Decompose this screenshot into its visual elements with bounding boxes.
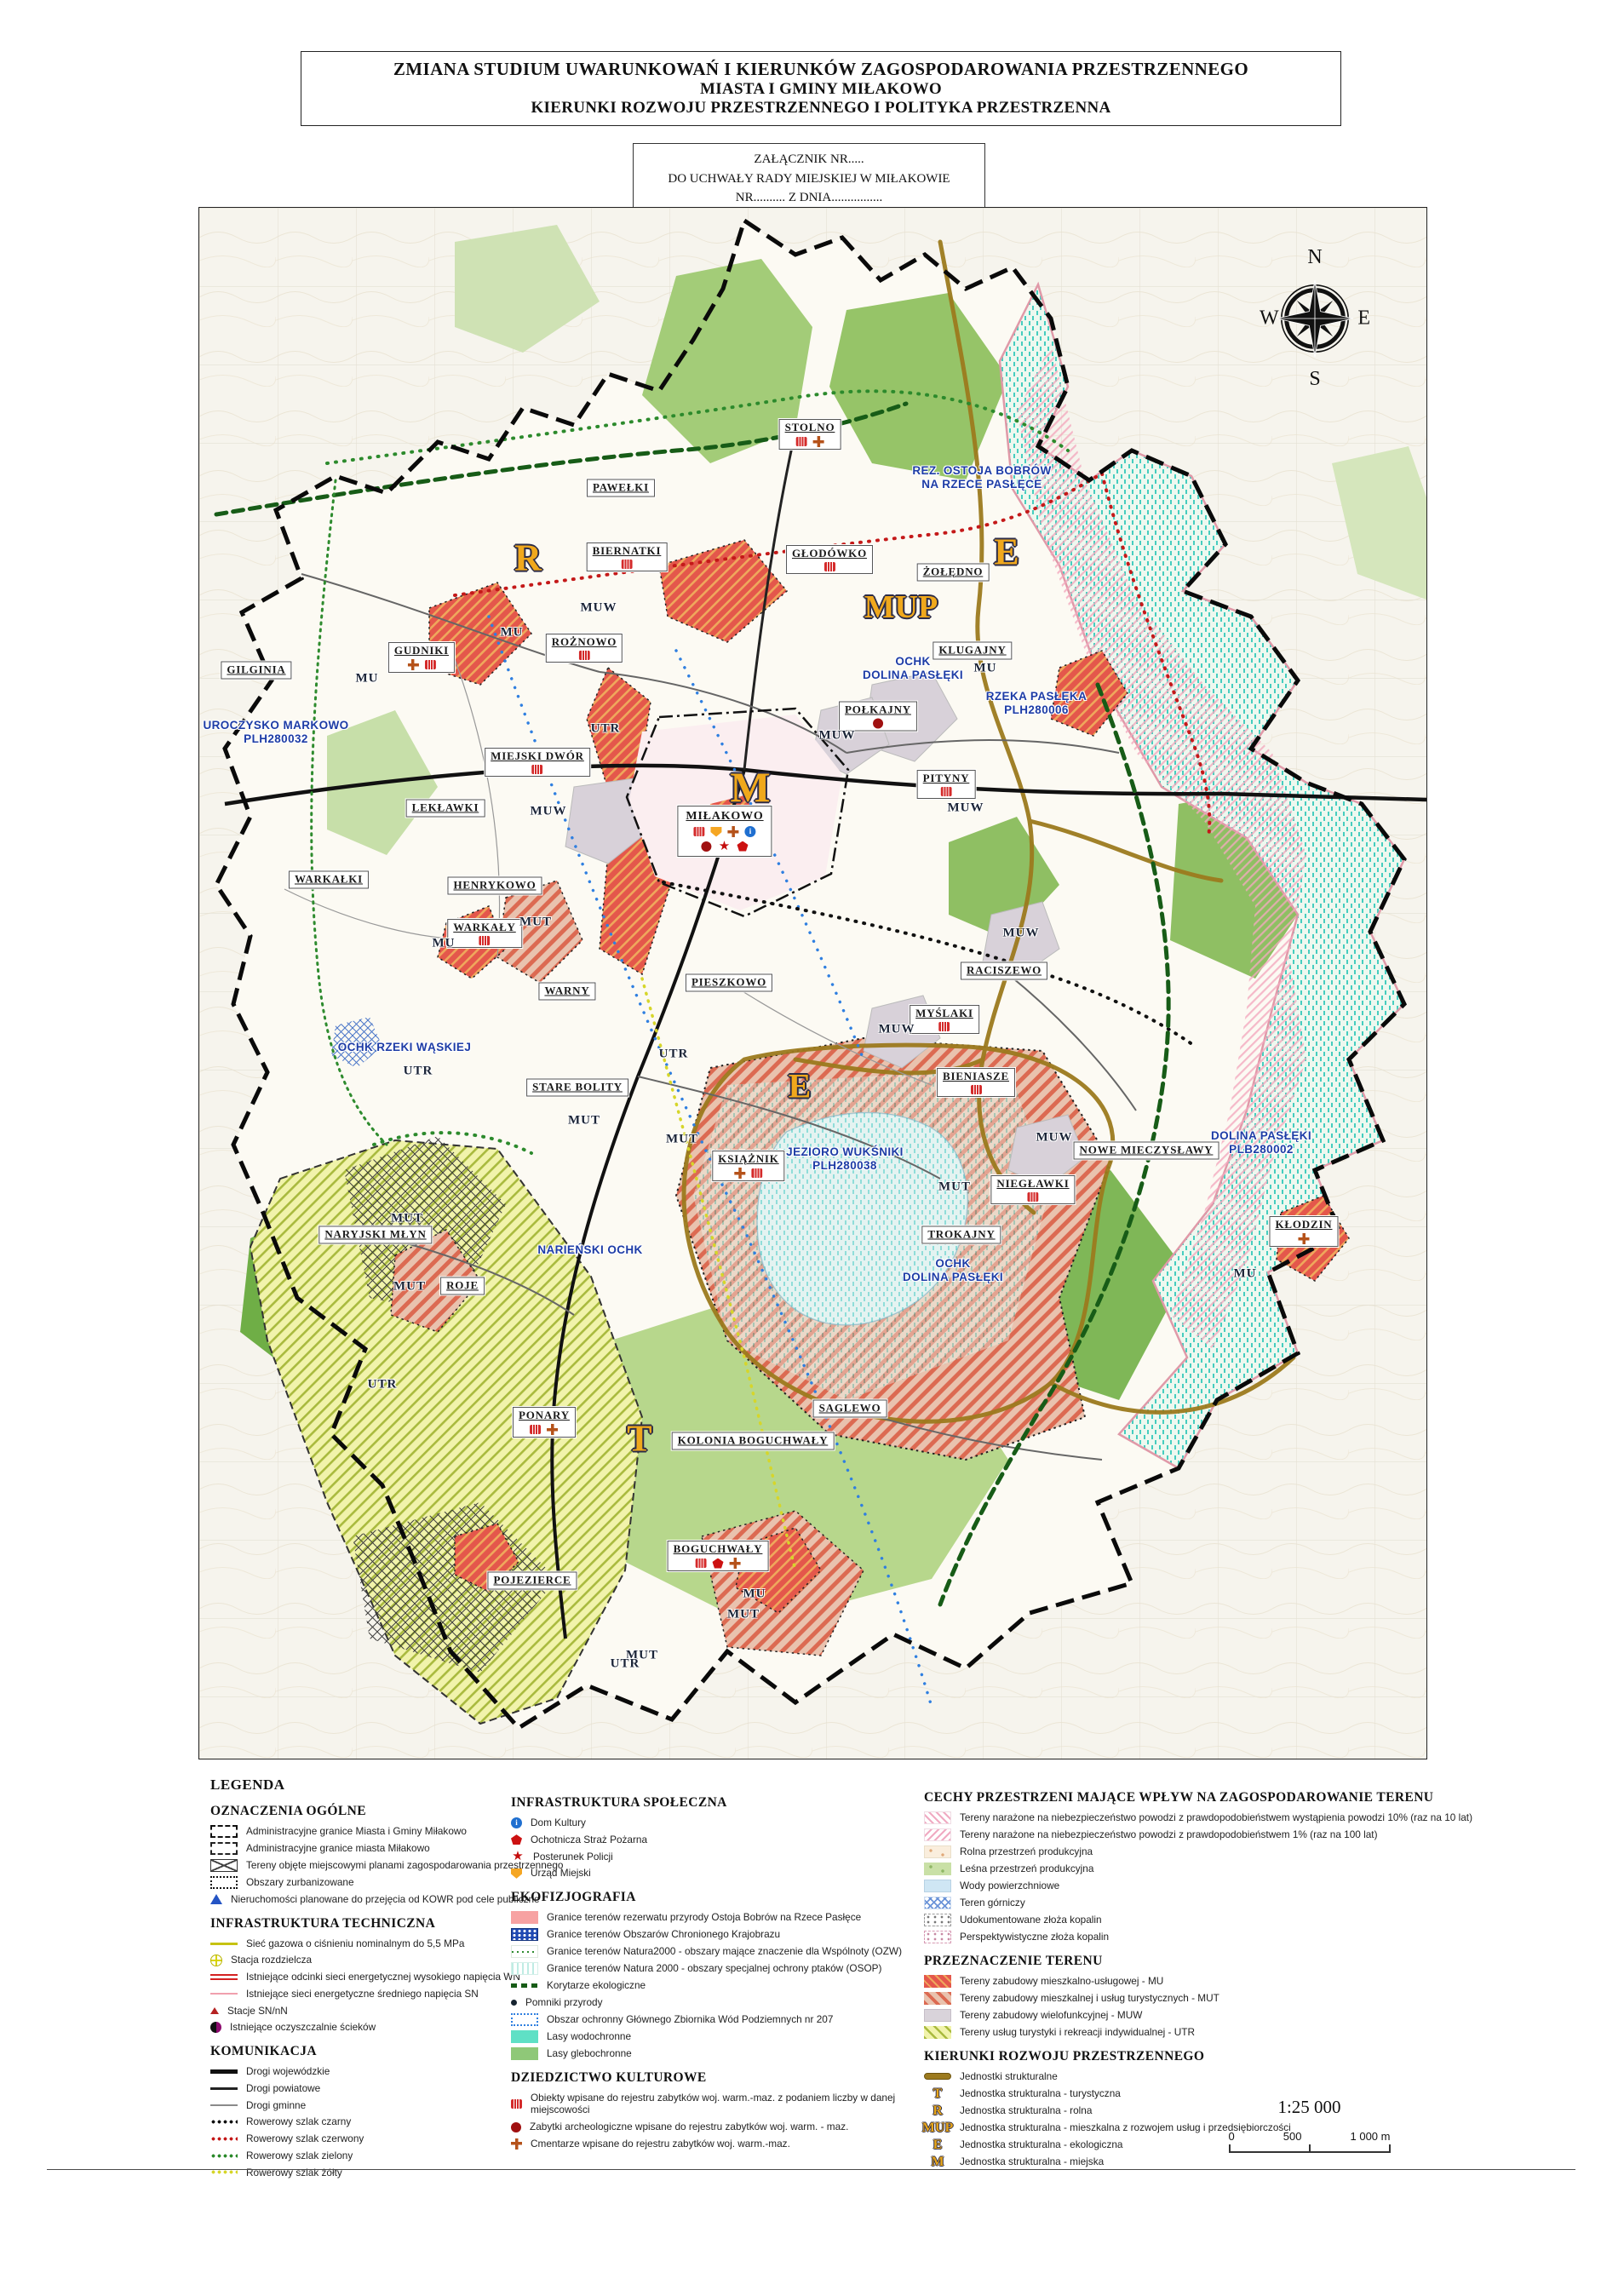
map-scale-ratio: 1:25 000 — [1209, 2097, 1409, 2118]
bike-black-icon — [210, 2120, 238, 2124]
legend-item-label: Urząd Miejski — [531, 1867, 591, 1880]
reserve-pink-icon — [511, 1911, 538, 1924]
legend-item-label: Istniejące odcinki sieci energetycznej w… — [246, 1971, 520, 1983]
town-label-pityny: PITYNY — [917, 770, 976, 799]
legend-item: Obiekty wpisane do rejestru zabytków woj… — [511, 2092, 924, 2116]
kowr-triangle-icon — [210, 1894, 222, 1904]
town-name: KŁODZIN — [1275, 1218, 1332, 1231]
annex-line-3: NR.......... Z DNIA................ — [637, 188, 981, 208]
heritage-building-icon — [622, 560, 633, 569]
legend-item: Tereny usług turystyki i rekreacji indyw… — [924, 2026, 1597, 2039]
legend-item-label: Lasy wodochronne — [547, 2030, 631, 2043]
unit-letter-icon: T — [924, 2087, 951, 2100]
heritage-building-icon — [1027, 1192, 1038, 1202]
zone-label-muw: MUW — [531, 805, 567, 819]
town-name: WARNY — [544, 984, 589, 998]
legend-section-ekofizjografia: EKOFIZJOGRAFIA — [511, 1890, 924, 1905]
eco-label-line: RZEKA PASŁĘKA — [986, 690, 1087, 703]
legend-item-label: Tereny zabudowy mieszkalno-usługowej - M… — [960, 1975, 1163, 1988]
zone-label-mu: MU — [974, 662, 997, 676]
eco-label-line: NA RZECE PASŁĘCE — [912, 478, 1051, 491]
legend-item: Rolna przestrzeń produkcyjna — [924, 1845, 1597, 1858]
legend-item-label: Lasy glebochronne — [547, 2047, 632, 2060]
town-label-mi-akowo: MIŁAKOWO — [677, 806, 772, 857]
zone-muw-icon — [924, 2009, 951, 2022]
town-icons — [519, 1424, 570, 1435]
legend-item-label: Rolna przestrzeń produkcyjna — [960, 1845, 1093, 1858]
compass-south: S — [1309, 368, 1320, 391]
structural-unit-letter-e: E — [994, 531, 1019, 574]
unit-letter-icon: M — [924, 2155, 951, 2168]
town-label-ponary: PONARY — [513, 1407, 576, 1438]
town-name: PIESZKOWO — [691, 976, 766, 990]
zone-label-mu: MU — [501, 626, 524, 640]
legend-item-label: Posterunek Policji — [533, 1851, 613, 1863]
legend-item: Zabytki archeologiczne wpisane do rejest… — [511, 2121, 924, 2133]
town-label-warka-ki: WARKAŁKI — [289, 871, 369, 889]
heritage-building-icon — [751, 1168, 762, 1178]
legend-section-infrastruktura-spo-eczna: INFRASTRUKTURA SPOŁECZNA — [511, 1795, 924, 1811]
town-name: POJEZIERCE — [493, 1574, 571, 1587]
town-label-naryjski-m-yn: NARYJSKI MŁYN — [318, 1226, 432, 1244]
compass-east: E — [1357, 307, 1370, 330]
legend-item: Urząd Miejski — [511, 1867, 924, 1880]
annex-line-2: DO UCHWAŁY RADY MIEJSKIEJ W MIŁAKOWIE — [637, 169, 981, 189]
zone-mut-icon — [924, 1992, 951, 2005]
town-label-k-odzin: KŁODZIN — [1269, 1216, 1338, 1247]
heritage-building-icon — [940, 787, 951, 796]
flood-1-icon — [924, 1828, 951, 1841]
eco-label-line: NARIEŃSKI OCHK — [537, 1243, 642, 1257]
zone-label-utr: UTR — [404, 1065, 433, 1079]
town-name: MIŁAKOWO — [686, 810, 763, 824]
fire-brigade-icon — [712, 1558, 723, 1569]
town-name: KOLONIA BOGUCHWAŁY — [678, 1434, 829, 1448]
cemetery-cross-icon — [511, 2138, 522, 2150]
legend-item: Tereny zabudowy wielofunkcyjnej - MUW — [924, 2009, 1597, 2022]
town-name: KSIĄŻNIK — [718, 1152, 778, 1166]
legend-item: Perspektywistyczne złoża kopalin — [924, 1931, 1597, 1943]
eco-label-line: PLH280038 — [786, 1159, 904, 1173]
town-label-pojezierce: POJEZIERCE — [487, 1572, 577, 1590]
town-name: RACISZEWO — [967, 964, 1042, 978]
legend-item: Granice terenów Obszarów Chronionego Kra… — [511, 1928, 924, 1941]
gas-station-icon — [210, 1954, 222, 1966]
town-icons — [785, 436, 835, 447]
water-forest-icon — [511, 2030, 538, 2043]
scale-tick-500: 500 — [1283, 2130, 1302, 2143]
fire-brigade-icon — [737, 841, 749, 852]
legend-item-label: Wody powierzchniowe — [960, 1880, 1059, 1892]
soil-forest-icon — [511, 2047, 538, 2060]
town-name: ŻOŁĘDNO — [923, 565, 984, 579]
zone-label-mut: MUT — [393, 1280, 426, 1294]
cemetery-cross-icon — [547, 1424, 558, 1435]
road-voivodeship-icon — [210, 2069, 238, 2074]
town-office-icon — [511, 1868, 522, 1879]
town-name: NOWE MIECZYSŁAWY — [1080, 1144, 1214, 1157]
legend-item: Pomniki przyrody — [511, 1996, 924, 2009]
title-line-3: KIERUNKI ROZWOJU PRZESTRZENNEGO I POLITY… — [310, 99, 1332, 118]
mining-area-icon — [924, 1897, 951, 1909]
eco-label-line: DOLINA PASŁĘKI — [1211, 1129, 1311, 1143]
town-name: STARE BOLITY — [532, 1081, 623, 1094]
police-star-icon — [511, 1850, 525, 1863]
eco-label-line: UROCZYSKO MARKOWO — [203, 719, 348, 732]
compass-north: N — [1307, 246, 1322, 269]
town-icons — [792, 562, 867, 571]
legend-item-label: Pomniki przyrody — [525, 1996, 602, 2009]
scale-tick-1000: 1 000 m — [1351, 2130, 1391, 2143]
town-label-warny: WARNY — [538, 983, 595, 1001]
legend-item: Leśna przestrzeń produkcyjna — [924, 1863, 1597, 1875]
town-label-gilginia: GILGINIA — [221, 662, 291, 680]
zone-label-muw: MUW — [879, 1023, 915, 1037]
town-name: BOGUCHWAŁY — [674, 1542, 763, 1556]
town-name: PAWEŁKI — [593, 481, 649, 495]
heritage-building-icon — [970, 1085, 981, 1094]
sheet-divider — [47, 2169, 1575, 2170]
scale-tick-0: 0 — [1229, 2130, 1235, 2143]
legend-item: Rowerowy szlak żółty — [210, 2167, 585, 2179]
legend-item-label: Rowerowy szlak czarny — [246, 2115, 351, 2128]
legend-item-label: Teren górniczy — [960, 1897, 1025, 1909]
cemetery-cross-icon — [813, 436, 824, 447]
town-name: GŁODÓWKO — [792, 547, 867, 560]
town-icons — [943, 1085, 1009, 1094]
town-label-nowe-mieczys-awy: NOWE MIECZYSŁAWY — [1074, 1142, 1219, 1160]
town-icons — [593, 560, 662, 569]
gzwp-border-icon — [511, 2013, 538, 2026]
town-label-pieszkowo: PIESZKOWO — [686, 974, 772, 992]
town-label-stolno: STOLNO — [779, 419, 841, 450]
archeo-site-icon — [511, 2122, 521, 2132]
legend-item-label: Granice terenów Natura 2000 - obszary sp… — [547, 1962, 881, 1975]
town-name: MYŚLAKI — [915, 1007, 973, 1020]
legend-item-label: Stacje SN/nN — [227, 2005, 288, 2018]
town-icons — [915, 1022, 973, 1031]
structural-unit-letter-m: M — [730, 762, 770, 812]
legend-item-label: Rowerowy szlak żółty — [246, 2167, 342, 2179]
eco-label-narie-ski-ochk: NARIEŃSKI OCHK — [537, 1243, 642, 1257]
town-name: SAGLEWO — [819, 1402, 881, 1415]
legend-item: Granice terenów Natura 2000 - obszary sp… — [511, 1962, 924, 1975]
eco-label-line: DOLINA PASŁĘKI — [863, 669, 963, 682]
town-name: WARKAŁY — [453, 921, 516, 934]
legend-item-label: Jednostka strukturalna - ekologiczna — [960, 2138, 1122, 2151]
deposits-perspective-icon — [924, 1931, 951, 1943]
legend-item: Granice terenów rezerwatu przyrody Ostoj… — [511, 1911, 924, 1924]
nature-monument-icon — [511, 2000, 517, 2006]
bike-green-icon — [210, 2154, 238, 2158]
title-block: ZMIANA STUDIUM UWARUNKOWAŃ I KIERUNKÓW Z… — [301, 51, 1341, 126]
town-name: HENRYKOWO — [453, 879, 536, 893]
urbanized-box-icon — [210, 1876, 238, 1889]
unit-letter-icon: MUP — [924, 2121, 951, 2134]
legend-item-label: Drogi gminne — [246, 2099, 306, 2112]
town-label-gudniki: GUDNIKI — [388, 642, 455, 673]
map-labels-layer: GILGINIAGUDNIKIPAWEŁKIBIERNATKIROŻNOWOST… — [199, 208, 1426, 1759]
legend-item-label: Sieć gazowa o ciśnieniu nominalnym do 5,… — [246, 1937, 464, 1950]
town-name: NARYJSKI MŁYN — [324, 1228, 426, 1242]
compass-rose: N E S W — [1260, 246, 1370, 391]
heritage-building-icon — [939, 1022, 950, 1031]
title-line-1: ZMIANA STUDIUM UWARUNKOWAŃ I KIERUNKÓW Z… — [310, 59, 1332, 80]
surface-water-icon — [924, 1880, 951, 1892]
legend-item-label: Granice terenów rezerwatu przyrody Ostoj… — [547, 1911, 861, 1924]
natura-osop-icon — [511, 1962, 538, 1975]
legend-item-label: Jednostka strukturalna - rolna — [960, 2104, 1092, 2117]
town-name: PONARY — [519, 1409, 570, 1422]
town-label-warka-y: WARKAŁY — [447, 919, 522, 948]
legend-item-label: Rowerowy szlak czerwony — [246, 2132, 364, 2145]
legend-item: Cmentarze wpisane do rejestru zabytków w… — [511, 2138, 924, 2150]
heritage-building-icon — [796, 437, 807, 446]
legend-item-label: Istniejące oczyszczalnie ścieków — [230, 2021, 376, 2034]
zone-label-utr: UTR — [368, 1378, 398, 1392]
legend-item-label: Dom Kultury — [531, 1817, 586, 1829]
eco-label-jezioro-wuk-niki: JEZIORO WUKŚNIKIPLH280038 — [786, 1145, 904, 1173]
ochk-border-icon — [511, 1928, 538, 1941]
zone-label-mu: MU — [1234, 1267, 1257, 1282]
legend-item-label: Tereny usług turystyki i rekreacji indyw… — [960, 2026, 1195, 2039]
culture-house-icon — [511, 1817, 522, 1828]
town-label-raciszewo: RACISZEWO — [961, 962, 1047, 980]
eco-corridor-icon — [511, 1983, 538, 1988]
eco-label-ochk: OCHKDOLINA PASŁĘKI — [863, 655, 963, 682]
heritage-building-icon — [531, 765, 542, 774]
legend-item-label: Tereny zabudowy mieszkalnej i usług tury… — [960, 1992, 1219, 2005]
unit-line-icon — [924, 2073, 951, 2080]
legend-item: Korytarze ekologiczne — [511, 1979, 924, 1992]
town-label-ksi-nik: KSIĄŻNIK — [712, 1151, 784, 1181]
legend-section-dziedzictwo-kulturowe: DZIEDZICTWO KULTUROWE — [511, 2070, 924, 2086]
town-label-boguchwa-y: BOGUCHWAŁY — [668, 1541, 769, 1571]
legend-section-kierunki-rozwoju-przestrzennego: KIERUNKI ROZWOJU PRZESTRZENNEGO — [924, 2049, 1597, 2064]
scale-bar — [1229, 2144, 1391, 2153]
police-star-icon — [718, 840, 732, 852]
forest-space-icon — [924, 1863, 951, 1875]
town-icons — [394, 659, 449, 670]
legend-item-label: Korytarze ekologiczne — [547, 1979, 646, 1992]
natura-ozw-icon — [511, 1945, 538, 1958]
town-label-saglewo: SAGLEWO — [813, 1400, 887, 1418]
legend-item-label: Tereny zabudowy wielofunkcyjnej - MUW — [960, 2009, 1142, 2022]
town-name: PITYNY — [923, 772, 970, 785]
eco-label-line: OCHK RZEKI WĄSKIEJ — [338, 1041, 471, 1054]
legend-item-label: Obszary zurbanizowane — [246, 1876, 354, 1889]
fire-brigade-icon — [511, 1834, 522, 1845]
legend-item-label: Jednostka strukturalna - turystyczna — [960, 2087, 1121, 2100]
zone-label-utr: UTR — [611, 1657, 640, 1672]
zone-utr-icon — [924, 2026, 951, 2039]
structural-unit-letter-e: E — [789, 1066, 812, 1106]
legend-item: MJednostka strukturalna - miejska — [924, 2155, 1597, 2168]
legend-item: Granice terenów Natura2000 - obszary maj… — [511, 1945, 924, 1958]
cemetery-cross-icon — [728, 826, 739, 837]
eco-label-rzeka-pas-ka: RZEKA PASŁĘKAPLH280006 — [986, 690, 1087, 717]
bike-red-icon — [210, 2137, 238, 2141]
legend-item-label: Zabytki archeologiczne wpisane do rejest… — [530, 2121, 848, 2133]
city-boundary-box-icon — [210, 1842, 238, 1855]
legend-item-label: Administracyjne granice Miasta i Gminy M… — [246, 1825, 467, 1838]
town-icons — [686, 826, 763, 837]
town-name: LEKŁAWKI — [412, 801, 479, 815]
legend-item: Tereny narażone na niebezpieczeństwo pow… — [924, 1811, 1597, 1824]
town-label-pawe-ki: PAWEŁKI — [587, 479, 655, 497]
legend-item: Dom Kultury — [511, 1817, 924, 1829]
legend-item-label: Jednostka strukturalna - miejska — [960, 2155, 1104, 2168]
legend-item-label: Perspektywistyczne złoża kopalin — [960, 1931, 1109, 1943]
annex-line-1: ZAŁĄCZNIK NR..... — [637, 150, 981, 169]
town-icons — [674, 1558, 763, 1569]
zone-label-mut: MUT — [519, 916, 552, 930]
eco-label-line: OCHK — [903, 1257, 1003, 1271]
title-line-2: MIASTA I GMINY MIŁAKOWO — [310, 80, 1332, 99]
legend-item: Udokumentowane złoża kopalin — [924, 1914, 1597, 1926]
town-name: GUDNIKI — [394, 644, 449, 657]
unit-letter-icon: R — [924, 2104, 951, 2117]
zone-label-muw: MUW — [1036, 1131, 1073, 1145]
eco-label-rez-ostoja-bobr-w: REZ. OSTOJA BOBRÓWNA RZECE PASŁĘCE — [912, 464, 1051, 491]
zone-label-mu: MU — [356, 672, 379, 686]
scale-block: 1:25 000 0 500 1 000 m — [1209, 2097, 1409, 2153]
eco-label-uroczysko-markowo: UROCZYSKO MARKOWOPLH280032 — [203, 719, 348, 746]
cemetery-cross-icon — [729, 1558, 740, 1569]
heritage-building-icon — [479, 936, 491, 945]
town-name: STOLNO — [785, 421, 835, 434]
town-name: ROJE — [446, 1279, 479, 1293]
eco-label-dolina-pas-ki: DOLINA PASŁĘKIPLB280002 — [1211, 1129, 1311, 1157]
legend-item: Lasy glebochronne — [511, 2047, 924, 2060]
heritage-building-icon — [694, 827, 705, 836]
town-icons — [1275, 1233, 1332, 1244]
zone-label-mu: MU — [433, 937, 456, 951]
zone-label-utr: UTR — [659, 1048, 689, 1062]
town-name: POŁKAJNY — [845, 703, 911, 717]
road-commune-icon — [210, 2104, 238, 2106]
legend-item-label: Leśna przestrzeń produkcyjna — [960, 1863, 1093, 1875]
town-label-kolonia-boguchwa-y: KOLONIA BOGUCHWAŁY — [672, 1432, 835, 1450]
eco-label-line: REZ. OSTOJA BOBRÓW — [912, 464, 1051, 478]
town-label-my-laki: MYŚLAKI — [910, 1005, 979, 1034]
town-label-lek-awki: LEKŁAWKI — [406, 800, 485, 818]
town-icons — [686, 840, 763, 852]
legend-item-label: Drogi powiatowe — [246, 2082, 320, 2095]
legend-item: Jednostki strukturalne — [924, 2070, 1597, 2083]
unit-letter-icon: E — [924, 2138, 951, 2151]
legend-section-cechy-przestrzeni-maj-ce-wp-yw-na-zagospodarowanie-terenu: CECHY PRZESTRZENI MAJĄCE WPŁYW NA ZAGOSP… — [924, 1790, 1597, 1805]
legend-item: Tereny narażone na niebezpieczeństwo pow… — [924, 1828, 1597, 1841]
town-icons — [491, 765, 584, 774]
town-icons — [996, 1192, 1069, 1202]
scale-ticks: 0 500 1 000 m — [1229, 2130, 1391, 2143]
town-icons — [718, 1168, 778, 1179]
legend-item-label: Jednostki strukturalne — [960, 2070, 1058, 2083]
legend-item: Teren górniczy — [924, 1897, 1597, 1909]
heritage-building-icon — [424, 660, 435, 669]
structural-unit-letter-r: R — [514, 537, 542, 580]
town-name: BIERNATKI — [593, 544, 662, 558]
town-name: TROKAJNY — [927, 1228, 995, 1242]
cemetery-cross-icon — [407, 659, 418, 670]
zone-mu-icon — [924, 1975, 951, 1988]
town-name: MIEJSKI DWÓR — [491, 749, 584, 763]
road-county-icon — [210, 2087, 238, 2090]
legend-item: Tereny zabudowy mieszkalno-usługowej - M… — [924, 1975, 1597, 1988]
legend-item-label: Granice terenów Obszarów Chronionego Kra… — [547, 1928, 780, 1941]
legend-item: Obszar ochronny Głównego Zbiornika Wód P… — [511, 2013, 924, 2026]
town-label-miejski-dw-r: MIEJSKI DWÓR — [485, 748, 590, 777]
hv-line-icon — [210, 1974, 238, 1980]
local-plans-box-icon — [210, 1859, 238, 1872]
legend-item-label: Obiekty wpisane do rejestru zabytków woj… — [531, 2092, 924, 2116]
cemetery-cross-icon — [734, 1168, 745, 1179]
zone-label-mut: MUT — [391, 1212, 423, 1226]
heritage-building-icon — [578, 651, 589, 660]
legend-item: Posterunek Policji — [511, 1850, 924, 1863]
flood-10-icon — [924, 1811, 951, 1824]
heritage-building-icon — [511, 2099, 522, 2109]
compass-star-icon — [1272, 276, 1357, 361]
eco-label-line: JEZIORO WUKŚNIKI — [786, 1145, 904, 1159]
legend-item-label: Stacja rozdzielcza — [231, 1954, 312, 1966]
town-icons — [923, 787, 970, 796]
culture-house-icon — [745, 826, 756, 837]
town-office-icon — [711, 827, 722, 837]
zone-label-mu: MU — [743, 1587, 766, 1602]
zone-label-mut: MUT — [568, 1114, 600, 1128]
legend-item-label: Tereny narażone na niebezpieczeństwo pow… — [960, 1811, 1472, 1824]
legend-item-label: Granice terenów Natura2000 - obszary maj… — [547, 1945, 902, 1958]
heritage-building-icon — [530, 1425, 541, 1434]
legend-item-label: Rowerowy szlak zielony — [246, 2150, 353, 2162]
zone-label-muw: MUW — [948, 801, 984, 816]
sewage-plant-icon — [210, 2022, 221, 2033]
eco-label-line: OCHK — [863, 655, 963, 669]
town-name: ROŻNOWO — [552, 635, 617, 649]
legend-item-label: Istniejące sieci energetyczne średniego … — [246, 1988, 479, 2000]
legend-item: Wody powierzchniowe — [924, 1880, 1597, 1892]
heritage-building-icon — [695, 1558, 706, 1568]
town-label-roje: ROJE — [440, 1277, 485, 1295]
bike-yellow-icon — [210, 2170, 238, 2174]
map-area: GILGINIAGUDNIKIPAWEŁKIBIERNATKIROŻNOWOST… — [198, 207, 1427, 1759]
town-name: NIEGŁAWKI — [996, 1177, 1069, 1191]
town-label-nieg-awki: NIEGŁAWKI — [990, 1175, 1075, 1204]
deposits-documented-icon — [924, 1914, 951, 1926]
zone-label-muw: MUW — [1003, 927, 1040, 941]
zone-label-muw: MUW — [819, 729, 856, 743]
annex-block: ZAŁĄCZNIK NR..... DO UCHWAŁY RADY MIEJSK… — [633, 143, 985, 215]
town-label-stare-bolity: STARE BOLITY — [526, 1079, 628, 1097]
sn-station-icon — [210, 2007, 219, 2014]
town-label-trokajny: TROKAJNY — [921, 1226, 1001, 1244]
town-label-biernatki: BIERNATKI — [587, 542, 668, 571]
archeo-site-icon — [702, 841, 712, 852]
mv-line-icon — [210, 1993, 238, 1995]
map-sheet: ZMIANA STUDIUM UWARUNKOWAŃ I KIERUNKÓW Z… — [0, 0, 1624, 2296]
town-name: BIENIASZE — [943, 1070, 1009, 1083]
town-icons — [845, 719, 911, 729]
legend-item-label: Tereny narażone na niebezpieczeństwo pow… — [960, 1828, 1378, 1841]
eco-label-line: PLH280006 — [986, 703, 1087, 717]
legend-item-label: Cmentarze wpisane do rejestru zabytków w… — [531, 2138, 790, 2150]
town-label-g-od-wko: GŁODÓWKO — [786, 545, 873, 574]
town-label-po-kajny: POŁKAJNY — [839, 702, 917, 732]
structural-unit-letter-t: T — [627, 1417, 651, 1461]
town-label-henrykowo: HENRYKOWO — [447, 877, 542, 895]
